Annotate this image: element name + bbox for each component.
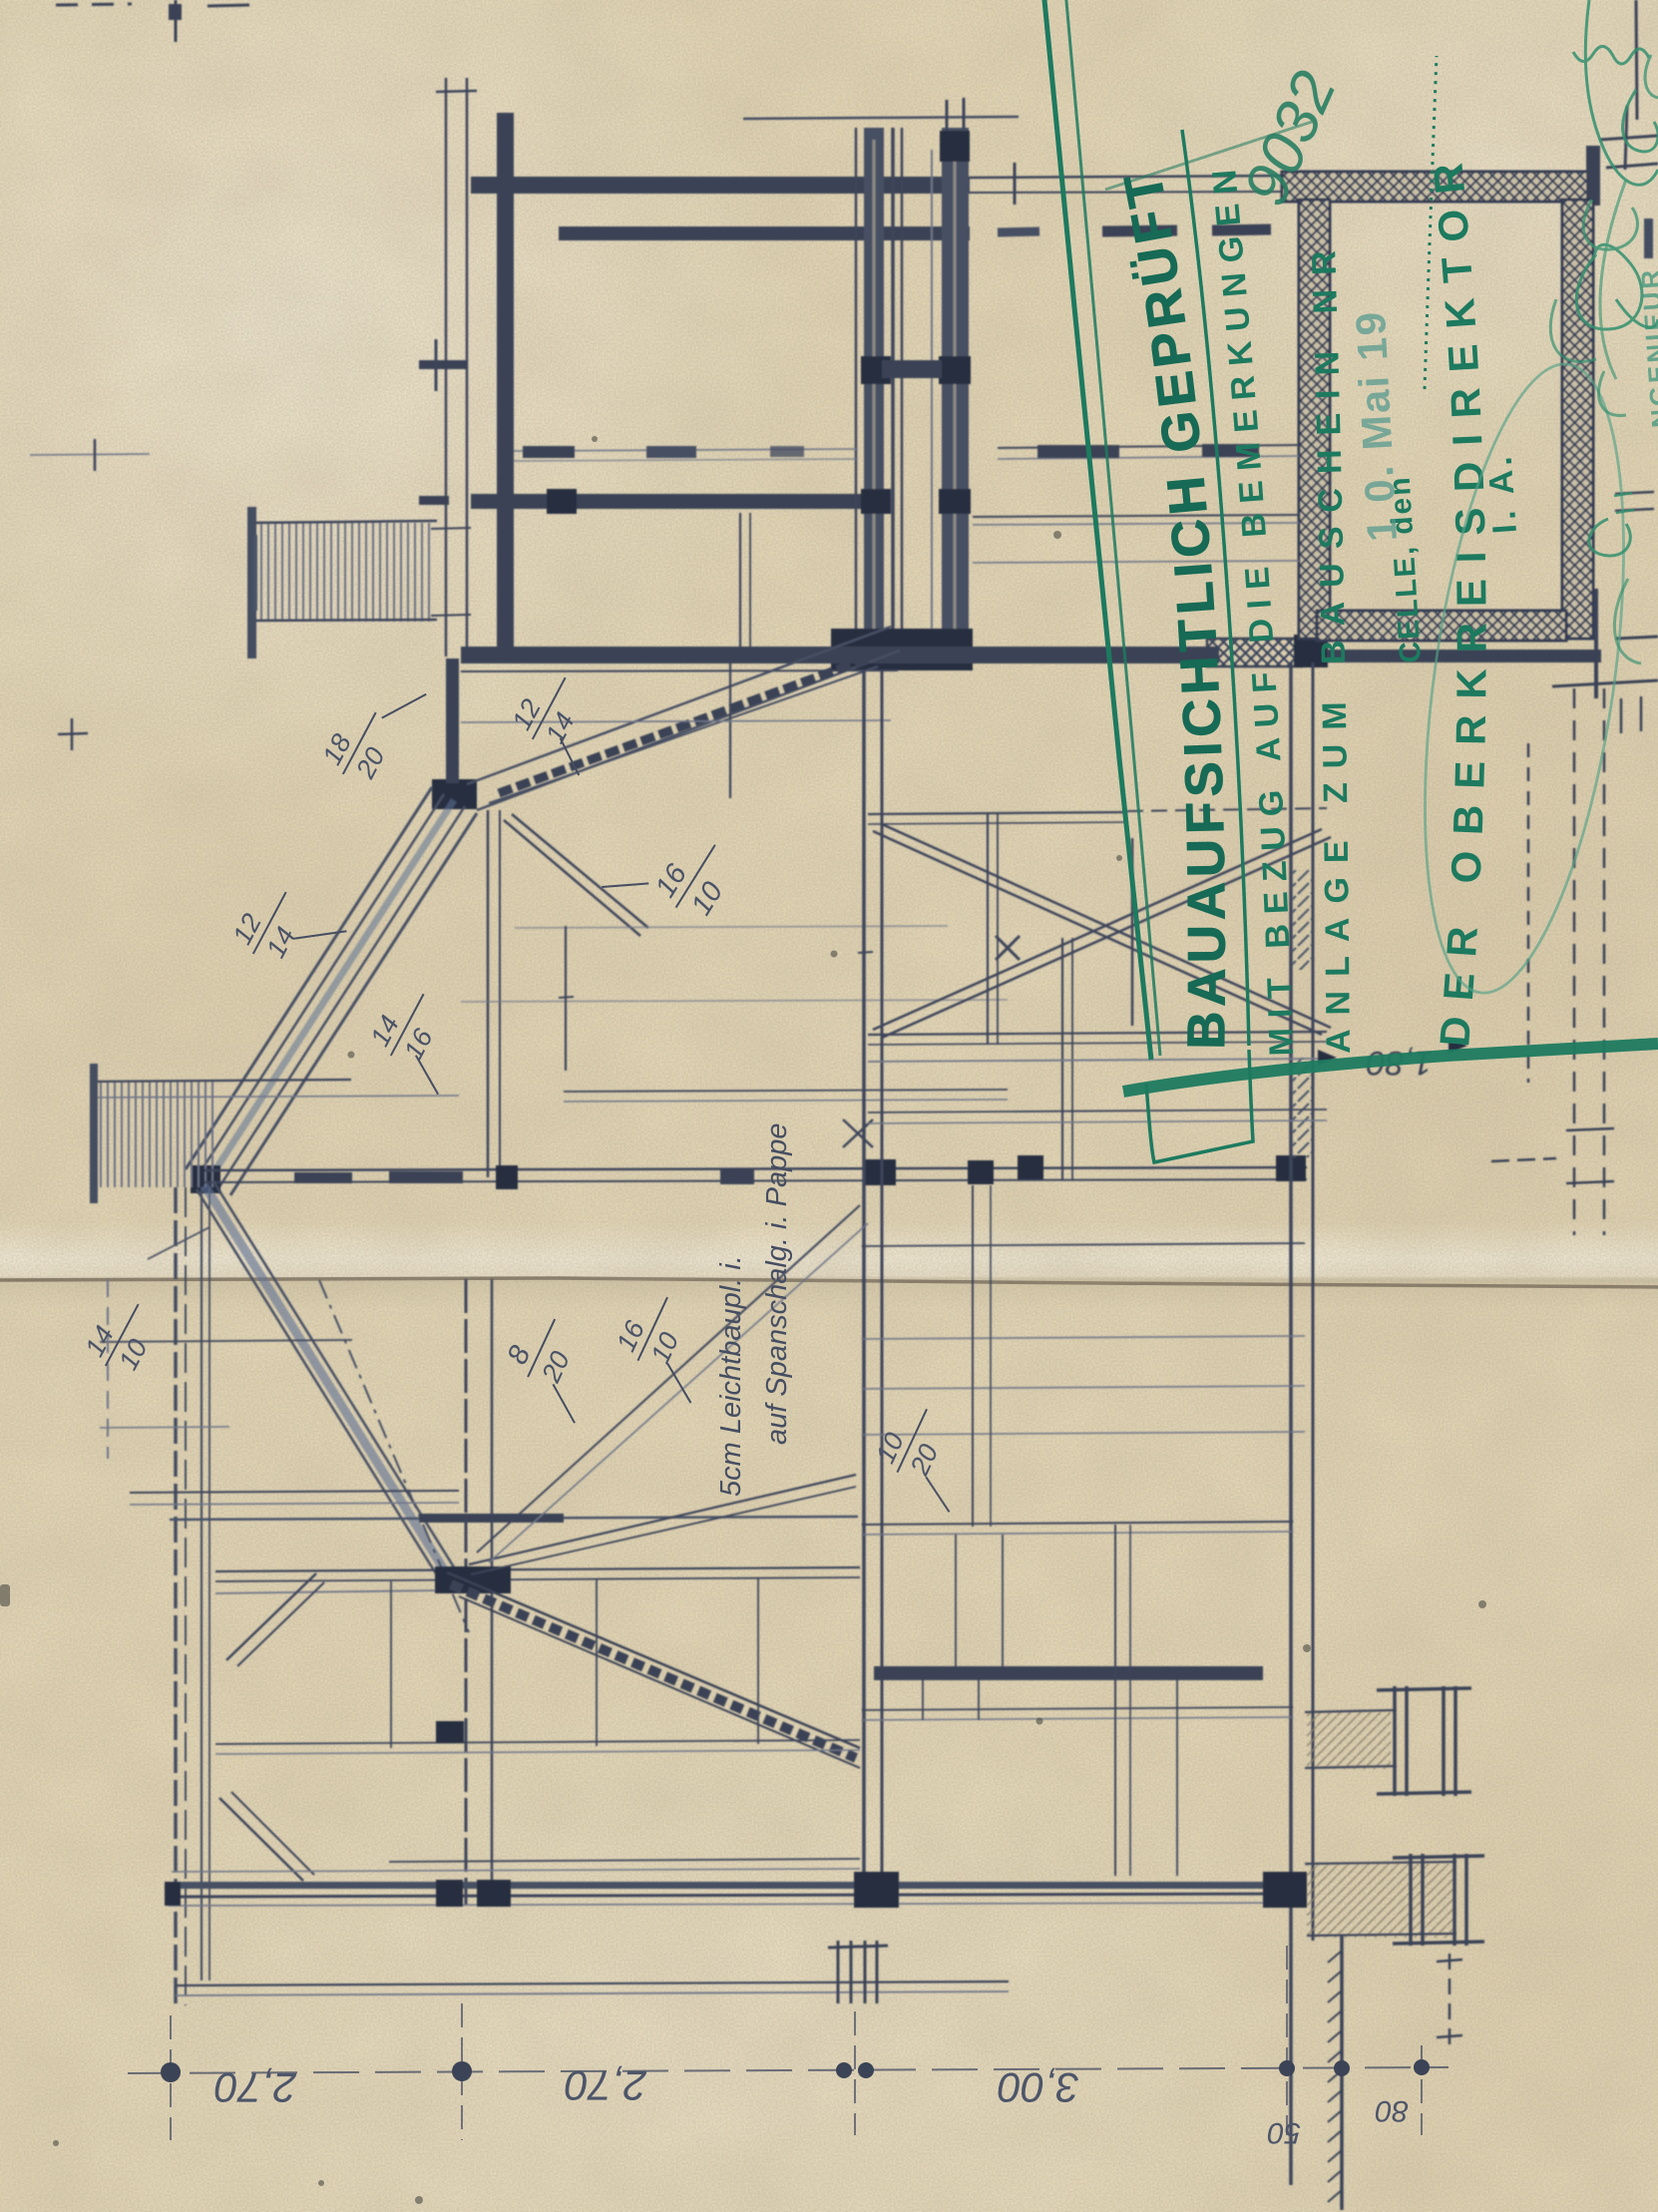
svg-text:3,00: 3,00 xyxy=(998,2064,1079,2111)
svg-text:auf Spanschalg. i. Pappe: auf Spanschalg. i. Pappe xyxy=(761,1123,793,1445)
svg-text:5cm Leichtbaupl. i.: 5cm Leichtbaupl. i. xyxy=(715,1255,747,1497)
svg-text:50: 50 xyxy=(1267,2116,1301,2149)
svg-text:2,70: 2,70 xyxy=(565,2062,647,2109)
svg-text:I. A.: I. A. xyxy=(1480,452,1524,536)
svg-text:80: 80 xyxy=(1375,2094,1409,2127)
svg-text:2,70: 2,70 xyxy=(214,2064,297,2111)
